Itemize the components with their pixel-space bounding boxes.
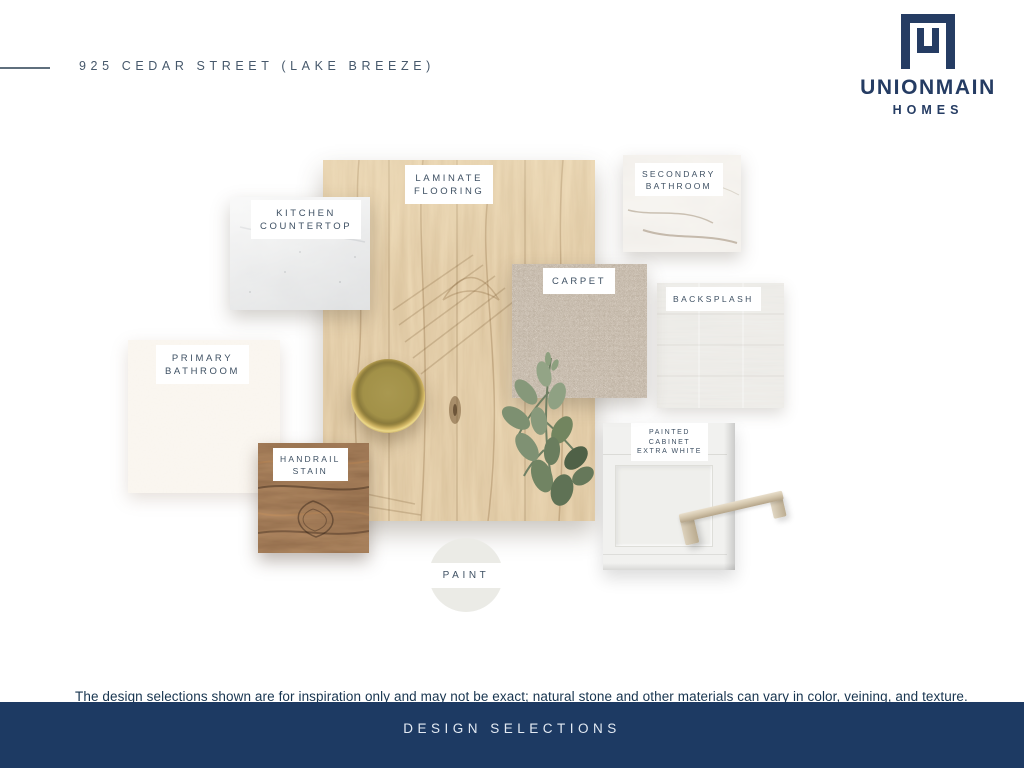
backsplash-label: BACKSPLASH: [666, 287, 761, 311]
swatch-kitchen-countertop: KITCHEN COUNTERTOP: [230, 197, 370, 310]
brand-subtitle: HOMES: [843, 103, 1013, 117]
paint-label: PAINT: [424, 563, 508, 588]
carpet-label: CARPET: [543, 268, 615, 294]
swatch-secondary-bathroom: SECONDARY BATHROOM: [623, 155, 741, 252]
cabinet-pull-handle-image: [681, 495, 787, 543]
header-divider-line: [0, 67, 50, 69]
eucalyptus-sprig-image: [496, 350, 608, 512]
page-title: 925 CEDAR STREET (LAKE BREEZE): [79, 59, 435, 73]
handrail-stain-label: HANDRAIL STAIN: [273, 448, 348, 481]
swatch-handrail-stain: HANDRAIL STAIN: [258, 443, 369, 553]
kitchen-countertop-label: KITCHEN COUNTERTOP: [251, 200, 361, 239]
bottom-banner: DESIGN SELECTIONS: [0, 702, 1024, 768]
swatch-backsplash: BACKSPLASH: [657, 283, 784, 408]
brand-name: UNIONMAIN: [843, 76, 1013, 100]
brass-tray-image: [351, 359, 425, 433]
unionmain-logo-icon: [901, 14, 955, 69]
banner-title: DESIGN SELECTIONS: [0, 702, 1024, 736]
laminate-flooring-label: LAMINATE FLOORING: [405, 165, 493, 204]
painted-cabinet-label: PAINTED CABINET EXTRA WHITE: [631, 423, 708, 461]
primary-bathroom-label: PRIMARY BATHROOM: [156, 345, 249, 384]
swatch-paint: PAINT: [427, 538, 505, 614]
unionmain-logo: UNIONMAIN HOMES: [843, 14, 1013, 117]
secondary-bathroom-label: SECONDARY BATHROOM: [635, 163, 723, 196]
design-selections-board: 925 CEDAR STREET (LAKE BREEZE) UNIONMAIN…: [0, 0, 1024, 768]
